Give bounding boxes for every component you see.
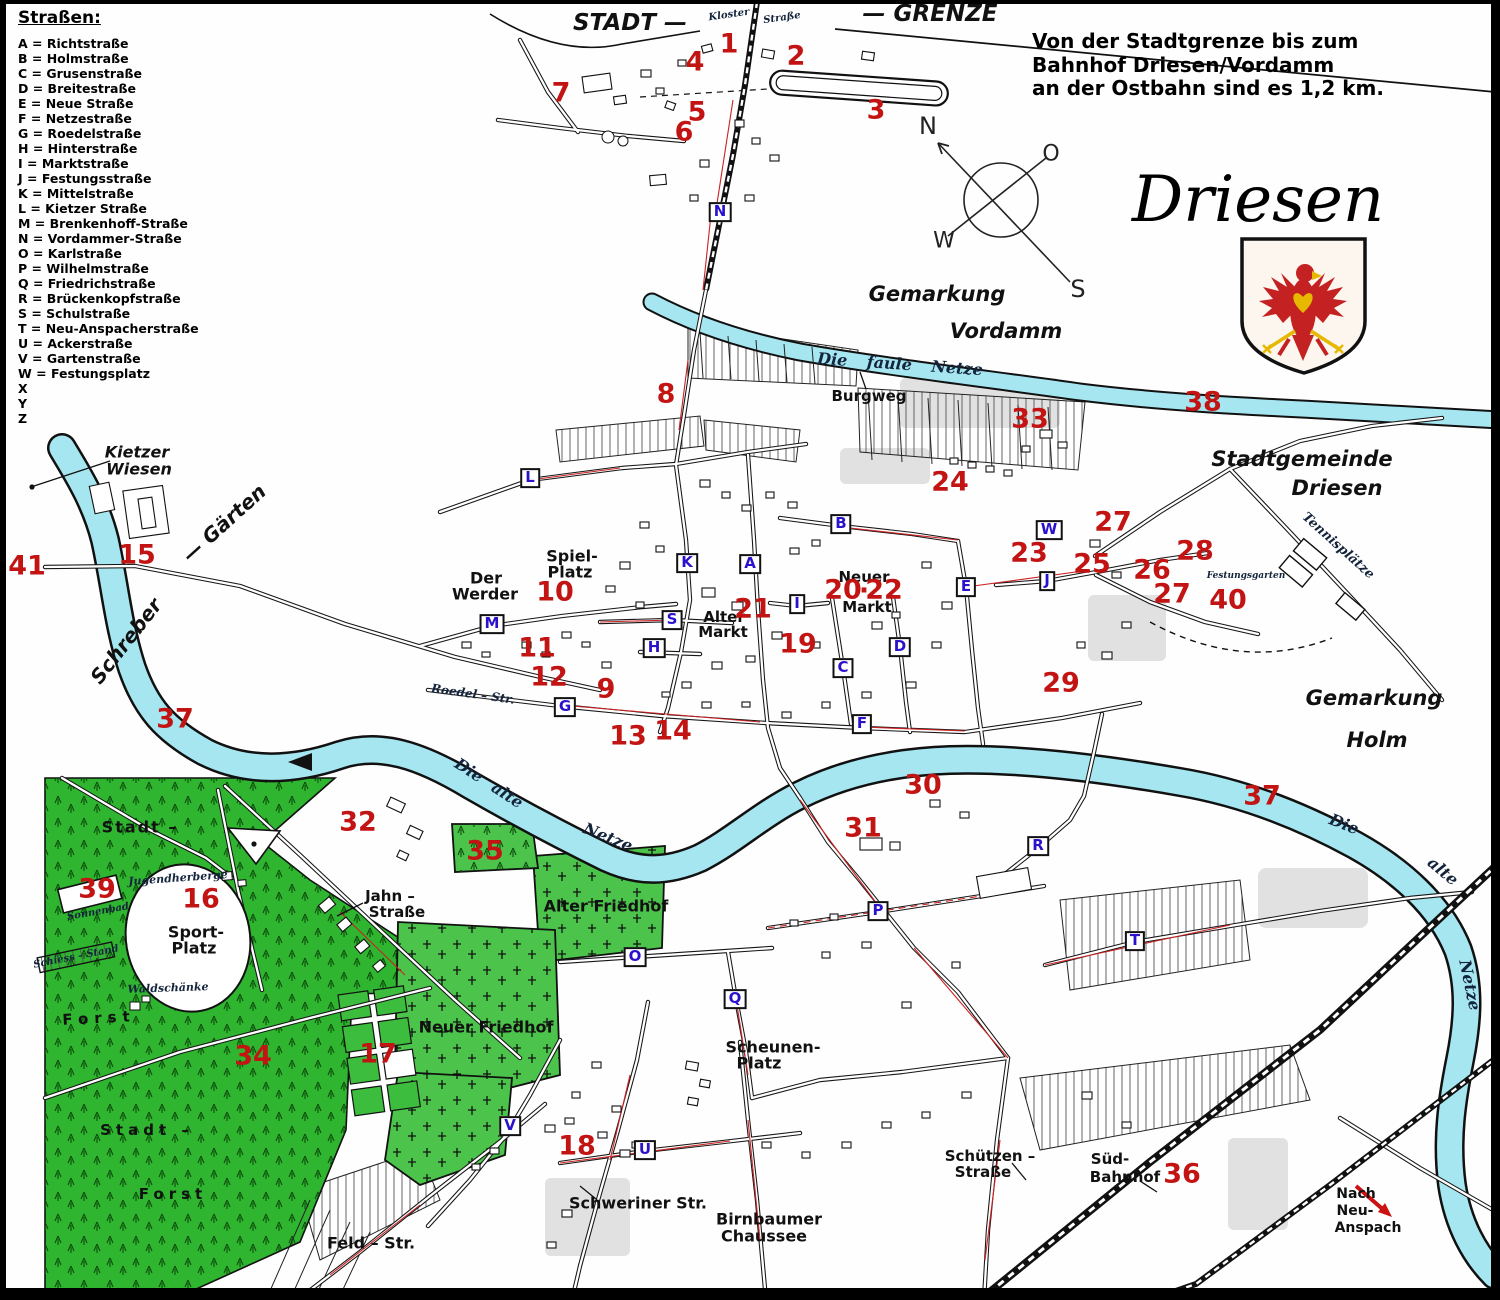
map-label-nach: Nach	[1336, 1186, 1375, 1202]
map-label-forst: Forst	[62, 1007, 136, 1029]
red-number-37: 37	[1243, 781, 1281, 812]
red-number-27: 27	[1153, 579, 1191, 610]
map-label-straße: Straße	[369, 903, 425, 921]
legend-item-H: H = Hinterstraße	[18, 141, 199, 156]
red-number-40: 40	[1209, 585, 1247, 616]
red-number-2: 2	[787, 41, 806, 72]
red-number-35: 35	[466, 836, 504, 867]
legend-item-X: X	[18, 381, 199, 396]
street-letter-H: H	[643, 638, 666, 658]
street-letter-I: I	[789, 594, 805, 614]
red-number-32: 32	[339, 807, 377, 838]
map-label-stadtgemeinde: Stadtgemeinde	[1211, 447, 1392, 471]
racetrack-oval	[769, 70, 948, 106]
map-label-w: W	[933, 229, 955, 254]
street-letter-F: F	[852, 714, 872, 734]
legend-item-O: O = Karlstraße	[18, 246, 199, 261]
map-label-werder: Werder	[452, 585, 518, 604]
note-line: Bahnhof Driesen/Vordamm	[1032, 54, 1384, 78]
map-label-forst: Forst	[139, 1185, 207, 1203]
legend-item-E: E = Neue Straße	[18, 96, 199, 111]
map-label-festungsgarten: Festungsgarten	[1207, 571, 1286, 581]
town-map: Straßen: A = RichtstraßeB = HolmstraßeC …	[0, 0, 1500, 1300]
legend-item-Q: Q = Friedrichstraße	[18, 276, 199, 291]
map-label-o: O	[1042, 142, 1059, 167]
legend-item-Z: Z	[18, 411, 199, 426]
legend-item-I: I = Marktstraße	[18, 156, 199, 171]
street-letter-W: W	[1036, 520, 1063, 540]
red-number-27: 27	[1094, 507, 1132, 538]
legend-item-T: T = Neu-Anspacherstraße	[18, 321, 199, 336]
map-label-alter-friedhof: Alter Friedhof	[544, 897, 669, 916]
red-number-19: 19	[779, 629, 817, 660]
legend-item-J: J = Festungsstraße	[18, 171, 199, 186]
legend-item-L: L = Kietzer Straße	[18, 201, 199, 216]
legend-item-M: M = Brenkenhoff-Straße	[18, 216, 199, 231]
legend-item-N: N = Vordammer-Straße	[18, 231, 199, 246]
map-label-s: S	[1070, 275, 1085, 303]
red-number-31: 31	[844, 813, 882, 844]
red-number-18: 18	[558, 1131, 596, 1162]
note-line: an der Ostbahn sind es 1,2 km.	[1032, 77, 1384, 101]
red-number-29: 29	[1042, 668, 1080, 699]
gray-shading	[545, 378, 1368, 1256]
map-label-gemarkung: Gemarkung	[1306, 686, 1443, 710]
red-number-36: 36	[1163, 1159, 1201, 1190]
street-letter-R: R	[1027, 836, 1049, 856]
map-label-vordamm: Vordamm	[950, 319, 1062, 343]
street-letter-E: E	[956, 577, 976, 597]
red-number-7: 7	[552, 78, 571, 109]
map-label-neu: Neu-	[1337, 1203, 1374, 1219]
map-label-burgweg: Burgweg	[831, 387, 906, 405]
street-letter-A: A	[739, 554, 761, 574]
legend-item-D: D = Breitestraße	[18, 81, 199, 96]
red-number-6: 6	[675, 117, 694, 148]
street-legend: Straßen: A = RichtstraßeB = HolmstraßeC …	[18, 8, 199, 426]
map-label-neuer-friedhof: Neuer Friedhof	[419, 1018, 554, 1037]
legend-item-C: C = Grusenstraße	[18, 66, 199, 81]
red-number-8: 8	[657, 379, 676, 410]
coat-of-arms	[1242, 239, 1365, 373]
legend-item-V: V = Gartenstraße	[18, 351, 199, 366]
street-letter-M: M	[480, 614, 505, 634]
legend-item-P: P = Wilhelmstraße	[18, 261, 199, 276]
street-letter-J: J	[1039, 571, 1055, 591]
street-letter-P: P	[868, 901, 889, 921]
map-label-markt: Markt	[698, 623, 748, 641]
red-number-34: 34	[234, 1041, 272, 1072]
red-number-3: 3	[867, 95, 886, 126]
map-label-stadt: Stadt –	[102, 818, 179, 837]
red-number-13: 13	[609, 721, 647, 752]
red-number-38: 38	[1184, 387, 1222, 418]
red-number-28: 28	[1176, 536, 1214, 567]
map-label-holm: Holm	[1346, 728, 1407, 752]
red-number-9: 9	[597, 674, 616, 705]
legend-item-S: S = Schulstraße	[18, 306, 199, 321]
map-label-schweriner-str: Schweriner Str.	[569, 1194, 707, 1213]
legend-item-G: G = Roedelstraße	[18, 126, 199, 141]
map-label-driesen: Driesen	[1292, 476, 1383, 500]
red-number-1: 1	[720, 29, 739, 60]
red-number-10: 10	[536, 577, 574, 608]
legend-list: A = RichtstraßeB = HolmstraßeC = Grusens…	[18, 36, 199, 426]
street-letter-D: D	[889, 637, 911, 657]
map-label-feld-str: Feld – Str.	[327, 1234, 415, 1253]
map-label-stadt: STADT —	[573, 10, 687, 36]
map-label-chaussee: Chaussee	[721, 1227, 807, 1246]
map-label-platz: Platz	[737, 1054, 782, 1073]
street-letter-C: C	[832, 658, 853, 678]
map-label-n: N	[919, 112, 937, 140]
map-title: Driesen	[1132, 163, 1384, 237]
red-number-24: 24	[931, 467, 969, 498]
red-number-22: 22	[865, 575, 903, 606]
legend-title: Straßen:	[18, 8, 199, 28]
red-number-4: 4	[686, 47, 705, 78]
red-number-39: 39	[78, 874, 116, 905]
red-number-21: 21	[734, 594, 772, 625]
street-letter-T: T	[1125, 931, 1145, 951]
red-number-14: 14	[654, 716, 692, 747]
street-letter-K: K	[676, 553, 698, 573]
map-label-platz: Platz	[172, 939, 217, 958]
map-label-wiesen: Wiesen	[106, 460, 172, 479]
map-label-stadt: Stadt –	[100, 1121, 194, 1139]
red-number-37: 37	[156, 704, 194, 735]
red-number-41: 41	[8, 551, 46, 582]
street-letter-N: N	[709, 202, 732, 222]
red-number-11: 11	[518, 633, 556, 664]
red-number-17: 17	[359, 1039, 397, 1070]
map-label-grenze: — GRENZE	[863, 1, 998, 27]
street-letter-S: S	[662, 610, 683, 630]
red-number-25: 25	[1073, 549, 1111, 580]
legend-item-U: U = Ackerstraße	[18, 336, 199, 351]
legend-item-B: B = Holmstraße	[18, 51, 199, 66]
legend-item-K: K = Mittelstraße	[18, 186, 199, 201]
map-label-gemarkung: Gemarkung	[869, 282, 1006, 306]
map-label-straße: Straße	[955, 1163, 1011, 1181]
street-letter-U: U	[634, 1140, 656, 1160]
red-number-30: 30	[904, 770, 942, 801]
street-letter-G: G	[554, 697, 576, 717]
map-label-anspach: Anspach	[1335, 1220, 1402, 1236]
street-letter-V: V	[499, 1116, 521, 1136]
red-number-20: 20	[824, 575, 862, 606]
note-line: Von der Stadtgrenze bis zum	[1032, 30, 1384, 54]
red-number-33: 33	[1011, 404, 1049, 435]
distance-note: Von der Stadtgrenze bis zum Bahnhof Drie…	[1032, 30, 1384, 101]
legend-item-W: W = Festungsplatz	[18, 366, 199, 381]
legend-item-F: F = Netzestraße	[18, 111, 199, 126]
red-number-16: 16	[182, 884, 220, 915]
map-label-bahnhof: Bahnhof	[1090, 1168, 1160, 1186]
street-letter-O: O	[624, 947, 647, 967]
legend-item-Y: Y	[18, 396, 199, 411]
red-number-12: 12	[530, 662, 568, 693]
red-number-15: 15	[118, 540, 156, 571]
street-letter-L: L	[520, 468, 540, 488]
street-letter-B: B	[830, 514, 851, 534]
map-label-süd: Süd-	[1091, 1150, 1129, 1168]
street-letter-Q: Q	[724, 989, 747, 1009]
legend-item-R: R = Brückenkopfstraße	[18, 291, 199, 306]
red-number-23: 23	[1010, 538, 1048, 569]
legend-item-A: A = Richtstraße	[18, 36, 199, 51]
